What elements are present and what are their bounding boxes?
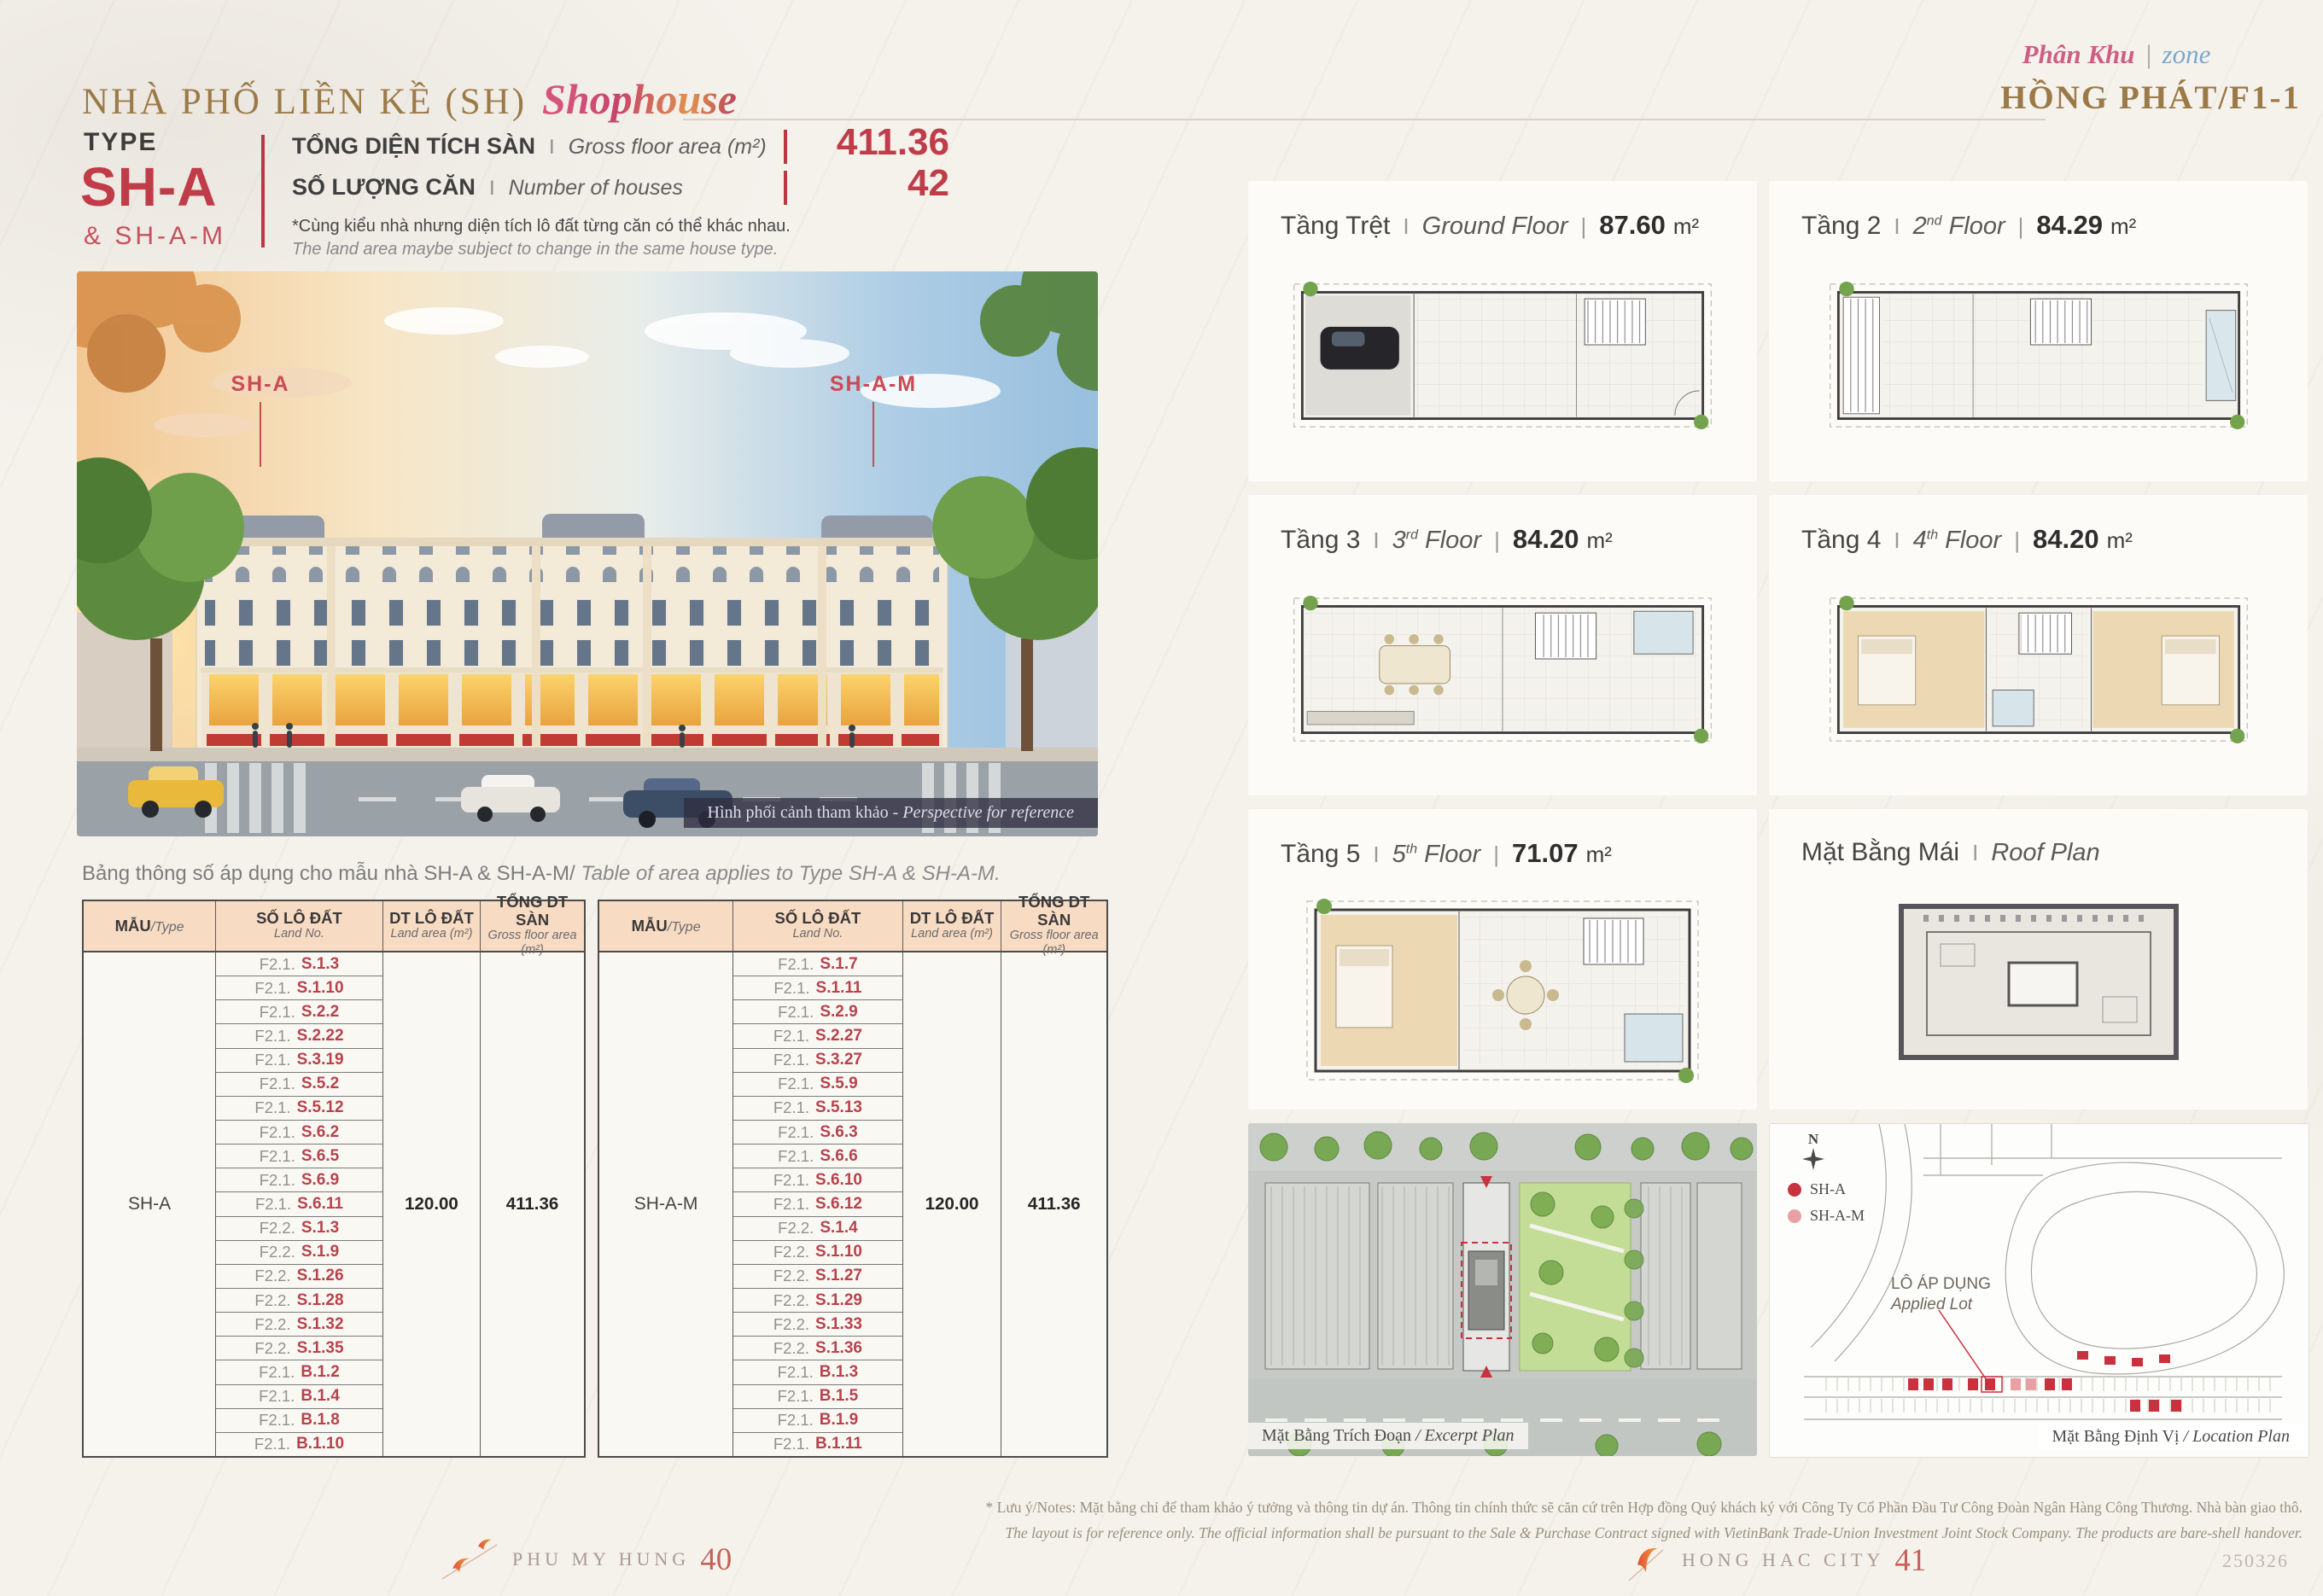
header-type: MẪU/Type xyxy=(84,901,215,951)
lot-code: S.3.27 xyxy=(815,1051,862,1069)
legend-dot-sh-a xyxy=(1787,1182,1802,1197)
zone-script-en: zone xyxy=(2162,39,2211,69)
lot-prefix: F2.1. xyxy=(260,1075,295,1093)
page-title: NHÀ PHỐ LIỀN KỀ (SH) Shophouse xyxy=(82,74,737,124)
lot-code: B.1.8 xyxy=(301,1411,339,1430)
lot-code: B.1.4 xyxy=(301,1387,339,1406)
lot-code: S.1.36 xyxy=(815,1339,862,1358)
table-caption-vi: Bảng thông số áp dụng cho mẫu nhà SH-A &… xyxy=(82,862,575,885)
lot-code: S.1.27 xyxy=(815,1267,862,1285)
lot-row: F2.1. B.1.9 xyxy=(733,1409,902,1433)
lot-row: F2.2. S.1.26 xyxy=(216,1265,382,1289)
lot-prefix: F2.2. xyxy=(260,1219,295,1238)
rendering-label-sh-a-text: SH-A xyxy=(231,372,289,396)
lot-code: S.2.2 xyxy=(301,1003,339,1022)
lot-code: S.6.10 xyxy=(815,1171,862,1190)
lot-row: F2.1. B.1.4 xyxy=(216,1385,382,1409)
footer-brand-hong-hac-city: HONG HAC CITY 41 xyxy=(1624,1536,1926,1584)
floor-3-plan-drawing xyxy=(1289,591,1716,753)
lot-row: F2.1. S.6.5 xyxy=(216,1145,382,1168)
lot-code: B.1.5 xyxy=(820,1387,858,1406)
lot-prefix: F2.1. xyxy=(259,1387,295,1406)
lot-prefix: F2.1. xyxy=(255,1195,291,1214)
type-code: SH-A xyxy=(80,155,217,218)
ground-floor-plan-drawing xyxy=(1289,277,1716,439)
lot-row: F2.1. S.5.12 xyxy=(216,1097,382,1121)
stat-gross-floor-area: TỔNG DIỆN TÍCH SÀN I Gross floor area (m… xyxy=(292,133,767,160)
lot-prefix: F2.1. xyxy=(773,1195,809,1214)
lot-row: F2.2. S.1.3 xyxy=(216,1217,382,1241)
lot-row: F2.1. S.6.2 xyxy=(216,1121,382,1145)
lot-code: S.1.3 xyxy=(301,955,339,974)
floor-label: Tầng Trệt I Ground Floor | 87.60 m² xyxy=(1281,210,1699,241)
lot-code: B.1.11 xyxy=(815,1435,862,1453)
lot-code: S.2.9 xyxy=(820,1003,857,1022)
bird-logo-icon xyxy=(441,1536,502,1582)
lot-row: F2.2. S.1.29 xyxy=(733,1289,902,1313)
stat-number-of-houses: SỐ LƯỢNG CĂN I Number of houses xyxy=(292,174,683,201)
lot-prefix: F2.1. xyxy=(778,1411,814,1430)
lot-code: S.1.33 xyxy=(815,1315,862,1334)
rendering-label-sh-a-m: SH-A-M xyxy=(801,372,946,467)
floor-cell-roof: Mặt Bằng Mái I Roof Plan xyxy=(1769,809,2308,1110)
lot-prefix: F2.1. xyxy=(254,1098,290,1117)
lot-code: S.1.4 xyxy=(820,1219,857,1238)
rendering-illustration xyxy=(77,271,1098,836)
lot-prefix: F2.1. xyxy=(773,1171,809,1190)
header-lot-no: SỐ LÔ ĐẤTLand No. xyxy=(215,901,382,951)
lot-row: F2.1. S.3.19 xyxy=(216,1049,382,1073)
lot-prefix: F2.2. xyxy=(260,1243,295,1261)
brand-name: HONG HAC CITY xyxy=(1682,1549,1884,1571)
lot-code: S.5.13 xyxy=(815,1098,862,1117)
legend-item-sh-a-m: SH-A-M xyxy=(1787,1207,1865,1225)
lot-code: S.6.6 xyxy=(820,1147,857,1166)
lot-code: S.2.27 xyxy=(815,1027,862,1046)
page-title-vi: NHÀ PHỐ LIỀN KỀ (SH) xyxy=(82,81,527,123)
compass-icon: N xyxy=(1802,1131,1824,1174)
header-type-vi: MẪU xyxy=(115,917,151,935)
lot-table-sh-a-m: MẪU/Type SỐ LÔ ĐẤTLand No. DT LÔ ĐẤTLand… xyxy=(598,900,1108,1458)
lot-code: S.5.2 xyxy=(301,1075,339,1093)
lot-code: S.5.12 xyxy=(297,1098,344,1117)
lot-rows: F2.1. S.1.3 F2.1. S.1.10 F2.1. S.2.2 F2.… xyxy=(215,952,382,1456)
lot-prefix: F2.2. xyxy=(778,1219,814,1238)
lot-row: F2.1. S.1.7 xyxy=(733,952,902,976)
excerpt-plan-map: Mặt Bằng Trích Đoạn / Excerpt Plan xyxy=(1248,1123,1757,1456)
page-number: 40 xyxy=(700,1541,732,1578)
lot-row: F2.1. S.3.27 xyxy=(733,1049,902,1073)
roof-plan-drawing xyxy=(1889,894,2188,1074)
lot-prefix: F2.1. xyxy=(260,1171,295,1190)
lot-row: F2.1. S.1.3 xyxy=(216,952,382,976)
lot-row: F2.1. S.5.2 xyxy=(216,1073,382,1097)
floor-cell-ground: Tầng Trệt I Ground Floor | 87.60 m² xyxy=(1248,181,1757,481)
legend-label: SH-A-M xyxy=(1810,1207,1865,1225)
lot-row: F2.2. S.1.28 xyxy=(216,1289,382,1313)
lot-code: S.1.32 xyxy=(297,1315,344,1334)
floor-4-plan-drawing xyxy=(1825,591,2252,753)
stat-gfa-label-vi: TỔNG DIỆN TÍCH SÀN xyxy=(292,133,535,160)
floor-2-plan-drawing xyxy=(1825,277,2252,439)
stat-separator: I xyxy=(549,136,555,160)
lot-prefix: F2.1. xyxy=(773,1051,809,1069)
lot-code: S.6.9 xyxy=(301,1171,339,1190)
stat-gfa-label-en: Gross floor area (m²) xyxy=(569,135,767,160)
lot-prefix: F2.1. xyxy=(778,1123,814,1142)
table-body: SH-A-M F2.1. S.1.7 F2.1. S.1.11 F2.1. S.… xyxy=(599,952,1106,1456)
lot-prefix: F2.2. xyxy=(254,1291,290,1310)
lot-code: S.6.11 xyxy=(297,1195,343,1214)
stat-houses-label-vi: SỐ LƯỢNG CĂN xyxy=(292,174,476,201)
lot-prefix: F2.1. xyxy=(254,1051,290,1069)
stat-accent-bar xyxy=(784,130,787,164)
lot-prefix: F2.1. xyxy=(260,1003,295,1022)
rendering-caption: Hình phối cảnh tham khảo - Perspective f… xyxy=(684,798,1099,828)
zone-script-divider: | xyxy=(2141,39,2156,69)
header-type: MẪU/Type xyxy=(599,901,733,951)
perspective-rendering: SH-A SH-A-M Hình phối cảnh tham khảo - P… xyxy=(77,271,1098,836)
lot-code: S.1.11 xyxy=(816,979,862,998)
page-number: 41 xyxy=(1894,1542,1926,1579)
brand-name: PHU MY HUNG xyxy=(512,1548,690,1570)
header-lot-no: SỐ LÔ ĐẤTLand No. xyxy=(733,901,902,951)
lot-code: B.1.9 xyxy=(820,1411,858,1430)
header-gfa: TỔNG DT SÀNGross floor area (m²) xyxy=(1001,901,1106,951)
location-plan-map: N SH-A SH-A-M LÔ ÁP DỤNG Applied Lot Mặt… xyxy=(1769,1123,2309,1458)
location-plan-drawing xyxy=(1770,1124,2308,1457)
lot-prefix: F2.2. xyxy=(773,1267,809,1285)
zone-script: Phân Khu | zone xyxy=(1963,39,2270,70)
lot-row: F2.1. S.2.27 xyxy=(733,1024,902,1048)
table-caption: Bảng thông số áp dụng cho mẫu nhà SH-A &… xyxy=(82,862,1001,886)
excerpt-plan-drawing xyxy=(1248,1123,1757,1456)
type-divider xyxy=(261,135,265,248)
lot-prefix: F2.1. xyxy=(778,1363,814,1382)
lot-prefix: F2.2. xyxy=(773,1339,809,1358)
lot-code: B.1.3 xyxy=(820,1363,858,1382)
stat-houses-label-en: Number of houses xyxy=(509,176,683,201)
document-code: 250326 xyxy=(2222,1550,2289,1572)
lot-row: F2.2. S.1.27 xyxy=(733,1265,902,1289)
lot-code: B.1.10 xyxy=(296,1435,344,1453)
floor-cell-3: Tầng 3 I 3rd Floor | 84.20 m² xyxy=(1248,495,1757,795)
lot-code: S.1.10 xyxy=(297,979,344,998)
lot-code: S.1.7 xyxy=(820,955,857,974)
lot-prefix: F2.1. xyxy=(773,1027,809,1046)
lot-prefix: F2.2. xyxy=(773,1291,809,1310)
type-note: *Cùng kiểu nhà nhưng diện tích lô đất từ… xyxy=(292,215,791,261)
lot-prefix: F2.1. xyxy=(778,1147,814,1166)
lot-row: F2.1. S.5.13 xyxy=(733,1097,902,1121)
lot-code: S.6.2 xyxy=(301,1123,339,1142)
lot-row: F2.1. S.6.12 xyxy=(733,1192,902,1216)
lot-prefix: F2.2. xyxy=(773,1243,809,1261)
lot-code: S.1.29 xyxy=(815,1291,862,1310)
lot-row: F2.2. S.1.33 xyxy=(733,1313,902,1337)
lot-prefix: F2.1. xyxy=(259,1411,295,1430)
gfa-cell: 411.36 xyxy=(1001,952,1106,1456)
legend-label: SH-A xyxy=(1810,1180,1846,1198)
lot-prefix: F2.1. xyxy=(260,1123,295,1142)
type-note-en: The land area maybe subject to change in… xyxy=(292,238,791,261)
lot-prefix: F2.1. xyxy=(778,1387,814,1406)
rendering-caption-en: Perspective for reference xyxy=(902,803,1074,822)
lot-prefix: F2.1. xyxy=(773,1435,809,1453)
floor-label: Tầng 3 I 3rd Floor | 84.20 m² xyxy=(1281,524,1613,555)
lot-row: F2.1. S.1.11 xyxy=(733,976,902,1000)
rendering-caption-vi: Hình phối cảnh tham khảo - xyxy=(708,803,903,822)
lot-row: F2.1. S.1.10 xyxy=(216,976,382,1000)
table-header: MẪU/Type SỐ LÔ ĐẤTLand No. DT LÔ ĐẤTLand… xyxy=(599,901,1106,952)
lot-code: S.1.28 xyxy=(297,1291,344,1310)
lot-row: F2.1. B.1.5 xyxy=(733,1385,902,1409)
lot-row: F2.2. S.1.10 xyxy=(733,1241,902,1265)
lot-row: F2.1. S.2.2 xyxy=(216,1000,382,1024)
lot-prefix: F2.1. xyxy=(260,1147,295,1166)
lot-row: F2.2. S.1.32 xyxy=(216,1313,382,1337)
land-area-cell: 120.00 xyxy=(902,952,1001,1456)
floor-label: Tầng 4 I 4th Floor | 84.20 m² xyxy=(1801,524,2133,555)
stat-separator: I xyxy=(489,177,495,201)
lot-rows: F2.1. S.1.7 F2.1. S.1.11 F2.1. S.2.9 F2.… xyxy=(733,952,902,1456)
lot-row: F2.1. S.6.3 xyxy=(733,1121,902,1145)
bird-logo-icon xyxy=(1624,1536,1672,1584)
lot-prefix: F2.1. xyxy=(260,955,295,974)
rendering-label-sh-a-m-text: SH-A-M xyxy=(830,372,917,396)
zone-name: HỒNG PHÁT/F1-1 xyxy=(2000,79,2301,117)
lot-code: S.1.3 xyxy=(301,1219,339,1238)
header-type-en: /Type xyxy=(151,920,184,935)
lot-code: S.1.10 xyxy=(815,1243,862,1261)
page-title-script: Shophouse xyxy=(542,74,737,124)
lot-code: S.3.19 xyxy=(297,1051,344,1069)
lot-code: B.1.2 xyxy=(301,1363,339,1382)
floor-cell-2: Tầng 2 I 2nd Floor | 84.29 m² xyxy=(1769,181,2308,481)
lot-code: S.1.9 xyxy=(301,1243,339,1261)
brochure-page: NHÀ PHỐ LIỀN KỀ (SH) Shophouse Phân Khu … xyxy=(0,0,2323,1596)
lot-prefix: F2.1. xyxy=(259,1363,295,1382)
lot-prefix: F2.2. xyxy=(254,1315,290,1334)
lot-row: F2.1. B.1.3 xyxy=(733,1360,902,1384)
lot-prefix: F2.1. xyxy=(773,979,809,998)
lot-row: F2.1. S.2.22 xyxy=(216,1024,382,1048)
lot-row: F2.1. B.1.2 xyxy=(216,1360,382,1384)
location-plan-caption: Mặt Bằng Định Vị / Location Plan xyxy=(2038,1424,2303,1450)
table-header: MẪU/Type SỐ LÔ ĐẤTLand No. DT LÔ ĐẤTLand… xyxy=(84,901,584,952)
table-caption-en: Table of area applies to Type SH-A & SH-… xyxy=(575,862,1001,885)
lot-code: S.1.26 xyxy=(297,1267,344,1285)
header-land-area: DT LÔ ĐẤTLand area (m²) xyxy=(902,901,1001,951)
floor-label: Mặt Bằng Mái I Roof Plan xyxy=(1801,838,2133,867)
lot-code: S.2.22 xyxy=(297,1027,344,1046)
floor-label: Tầng 2 I 2nd Floor | 84.29 m² xyxy=(1801,210,2136,241)
lot-code: S.1.35 xyxy=(297,1339,344,1358)
lot-prefix: F2.1. xyxy=(773,1098,809,1117)
lot-row: F2.1. S.2.9 xyxy=(733,1000,902,1024)
compass-n-label: N xyxy=(1802,1131,1824,1148)
lot-prefix: F2.1. xyxy=(254,1027,290,1046)
floor-5-plan-drawing xyxy=(1302,894,1703,1091)
lot-row: F2.1. S.6.6 xyxy=(733,1145,902,1168)
lot-row: F2.1. S.6.9 xyxy=(216,1168,382,1192)
lot-code: S.6.12 xyxy=(815,1195,862,1214)
type-note-vi: *Cùng kiểu nhà nhưng diện tích lô đất từ… xyxy=(292,215,791,238)
gfa-cell: 411.36 xyxy=(480,952,584,1456)
footer-notes-vi: * Lưu ý/Notes: Mặt bằng chỉ để tham khảo… xyxy=(986,1495,2303,1521)
lot-prefix: F2.2. xyxy=(254,1267,290,1285)
stat-houses-value: 42 xyxy=(794,162,949,205)
lot-prefix: F2.1. xyxy=(778,955,814,974)
lot-prefix: F2.2. xyxy=(773,1315,809,1334)
floor-cell-5: Tầng 5 I 5th Floor | 71.07 m² xyxy=(1248,809,1757,1110)
lot-row: F2.1. B.1.11 xyxy=(733,1433,902,1456)
type-label: TYPE xyxy=(84,128,157,157)
lot-prefix: F2.1. xyxy=(778,1003,814,1022)
lot-row: F2.2. S.1.4 xyxy=(733,1217,902,1241)
lot-row: F2.1. B.1.8 xyxy=(216,1409,382,1433)
legend-dot-sh-a-m xyxy=(1787,1209,1802,1224)
lot-code: S.6.5 xyxy=(301,1147,339,1166)
lot-row: F2.1. S.5.9 xyxy=(733,1073,902,1097)
lot-row: F2.2. S.1.35 xyxy=(216,1337,382,1360)
label-leader-line xyxy=(260,402,261,467)
lot-row: F2.1. S.6.10 xyxy=(733,1168,902,1192)
lot-row: F2.2. S.1.9 xyxy=(216,1241,382,1265)
zone-script-vi: Phân Khu xyxy=(2022,39,2135,69)
table-body: SH-A F2.1. S.1.3 F2.1. S.1.10 F2.1. S.2.… xyxy=(84,952,584,1456)
floor-label: Tầng 5 I 5th Floor | 71.07 m² xyxy=(1281,838,1612,869)
header-rule xyxy=(683,119,2046,120)
lot-prefix: F2.1. xyxy=(254,1435,290,1453)
type-code-secondary: & SH-A-M xyxy=(84,222,226,251)
land-area-cell: 120.00 xyxy=(382,952,480,1456)
floor-cell-4: Tầng 4 I 4th Floor | 84.20 m² xyxy=(1769,495,2308,795)
map-legend: SH-A SH-A-M xyxy=(1787,1180,1865,1225)
excerpt-plan-caption: Mặt Bằng Trích Đoạn / Excerpt Plan xyxy=(1248,1423,1528,1449)
type-cell: SH-A-M xyxy=(599,952,733,1456)
header-gfa: TỔNG DT SÀNGross floor area (m²) xyxy=(480,901,584,951)
stat-gfa-value: 411.36 xyxy=(794,121,949,164)
lot-row: F2.1. S.6.11 xyxy=(216,1192,382,1216)
lot-table-sh-a: MẪU/Type SỐ LÔ ĐẤTLand No. DT LÔ ĐẤTLand… xyxy=(82,900,586,1458)
lot-prefix: F2.1. xyxy=(254,979,290,998)
legend-item-sh-a: SH-A xyxy=(1787,1180,1865,1198)
lot-prefix: F2.2. xyxy=(254,1339,290,1358)
lot-code: S.6.3 xyxy=(820,1123,857,1142)
lot-prefix: F2.1. xyxy=(778,1075,814,1093)
footer-brand-phu-my-hung: PHU MY HUNG 40 xyxy=(441,1536,732,1582)
label-leader-line xyxy=(873,402,874,467)
lot-row: F2.2. S.1.36 xyxy=(733,1337,902,1360)
applied-lot-note: LÔ ÁP DỤNG Applied Lot xyxy=(1891,1274,1991,1315)
type-cell: SH-A xyxy=(84,952,215,1456)
header-land-area: DT LÔ ĐẤTLand area (m²) xyxy=(382,901,480,951)
stat-accent-bar xyxy=(784,171,787,205)
rendering-label-sh-a: SH-A xyxy=(205,372,316,467)
lot-code: S.5.9 xyxy=(820,1075,857,1093)
lot-row: F2.1. B.1.10 xyxy=(216,1433,382,1456)
